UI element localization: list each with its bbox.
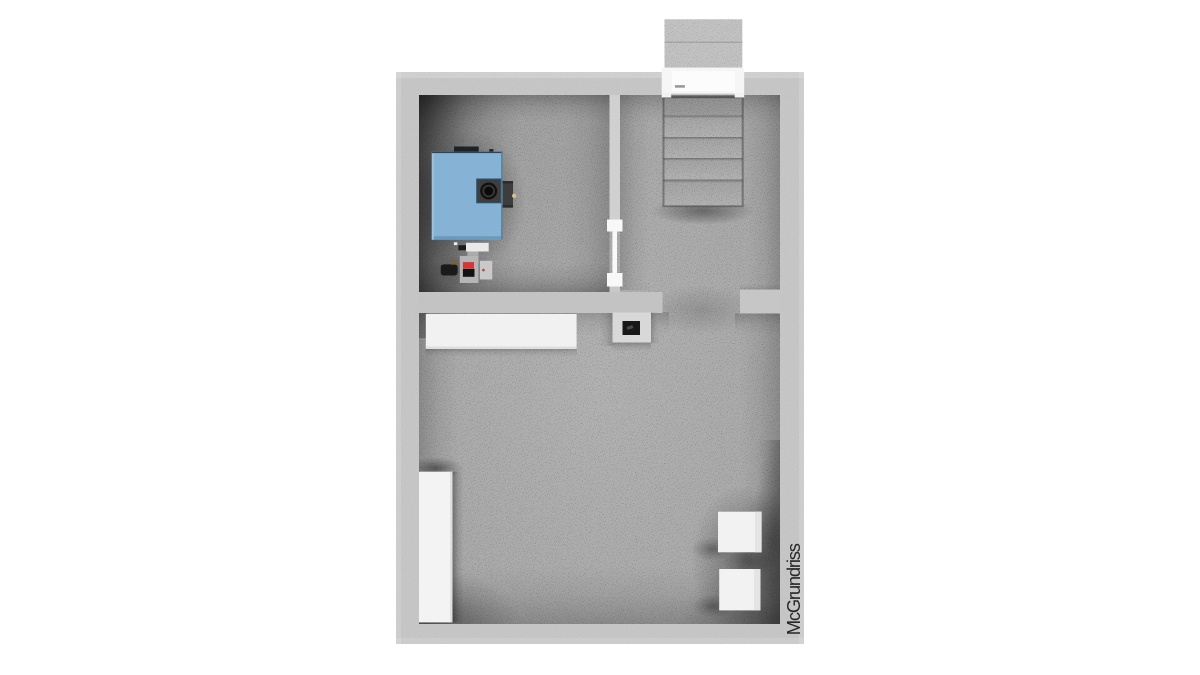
svg-text:McGrundriss: McGrundriss [783,543,804,635]
